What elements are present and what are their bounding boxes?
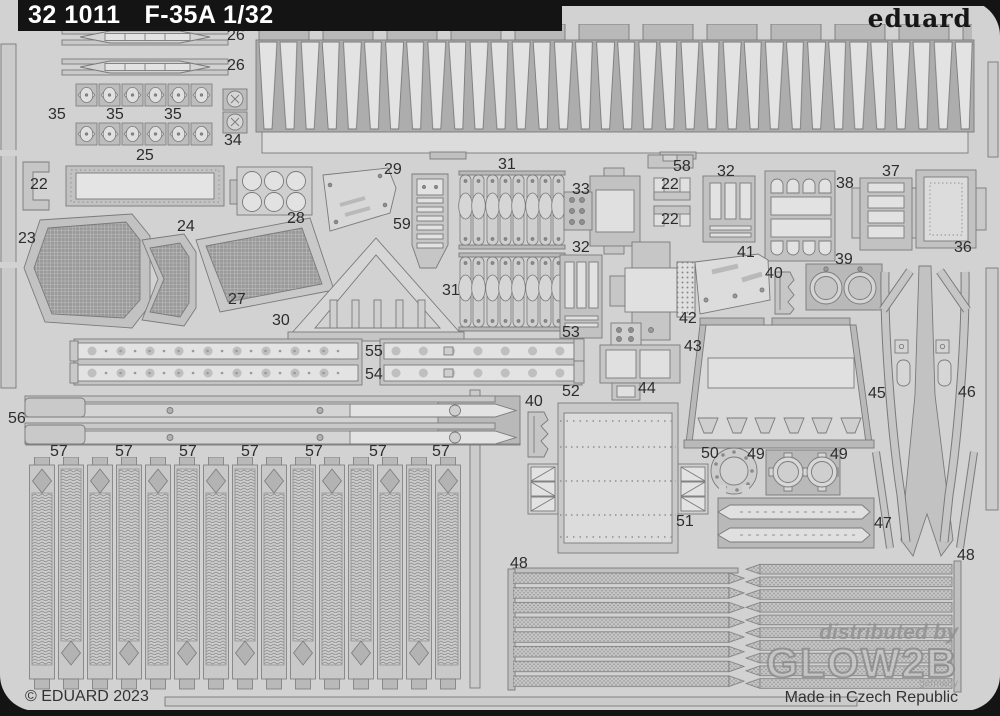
part-23-mesh [24, 214, 150, 328]
part-32-louver-a [703, 176, 755, 242]
part-56-rails [25, 396, 520, 444]
eduard-logo: eduard [868, 4, 972, 33]
copyright-text: © EDUARD 2023 [25, 688, 149, 706]
product-title: F-35A 1/32 [145, 1, 274, 30]
part-28-plate [230, 167, 312, 215]
part-22-brackets [654, 178, 690, 226]
part-50-ring [711, 448, 757, 495]
part-31-strips [459, 171, 566, 331]
part-35-ovals [76, 84, 212, 145]
bottom-bar [0, 710, 1000, 716]
part-58-bar [648, 155, 693, 168]
part-27-mesh [196, 218, 334, 312]
part-49-discs [766, 450, 840, 495]
etched-parts-graphic [0, 0, 1000, 716]
part-fan-band [256, 24, 974, 159]
part-43-panel [684, 318, 874, 448]
catalog-number: 32 1011 [28, 1, 121, 30]
made-in-text: Made in Czech Republic [785, 689, 958, 707]
part-39-rings [806, 264, 882, 310]
part-36-box [916, 170, 986, 248]
part-41-plate [695, 254, 770, 314]
part-29-plate [323, 168, 396, 231]
part-57-strips [28, 457, 462, 690]
part-53-52-strips [70, 339, 584, 385]
part-22-bracket-left [23, 162, 49, 210]
watermark-glow2b-logo: GLOW2B [766, 645, 958, 682]
part-25-frame [66, 166, 224, 206]
part-59-ladder [412, 174, 448, 268]
part-26-strips [62, 29, 228, 75]
part-33-box [564, 168, 640, 254]
part-38-scalloped [765, 171, 835, 261]
product-photo: 2626353535342522282324273029593131335822… [0, 0, 1000, 716]
part-45-46-blades [876, 266, 974, 556]
part-51-panel [528, 403, 708, 553]
part-47-blades [718, 498, 874, 548]
part-32-louver-b [560, 255, 602, 338]
distributor-watermark: distributed by GLOW2B germany [766, 621, 958, 689]
part-37-box [852, 178, 920, 250]
part-34-discs [223, 89, 247, 133]
header-title-block: 32 1011 F-35A 1/32 [18, 0, 562, 31]
